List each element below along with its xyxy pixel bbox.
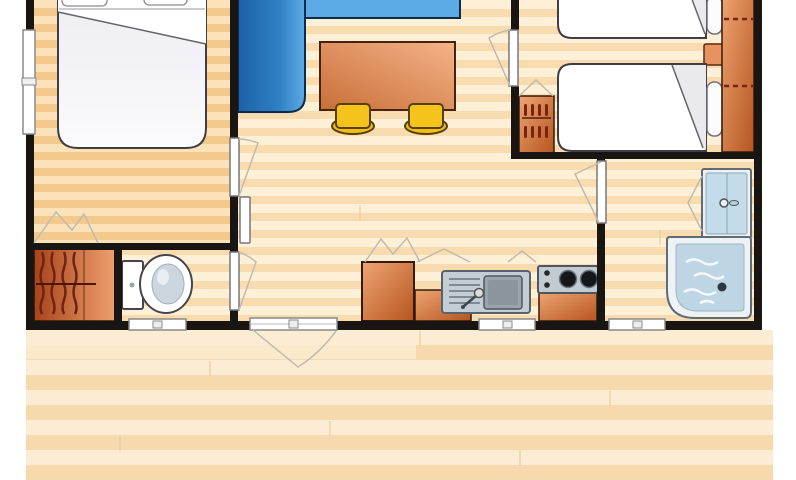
nightstand <box>704 44 723 65</box>
wall-twin-left <box>511 0 519 30</box>
dining-table <box>320 42 455 110</box>
closet-bifold-doors <box>34 212 98 243</box>
floorplan-drawing <box>0 0 796 480</box>
swing-twin-bedroom-door <box>489 30 510 86</box>
wall-wc-top <box>33 243 230 250</box>
wall-shower-left <box>597 223 605 321</box>
swing-double-bedroom-door <box>239 139 258 196</box>
swing-entrance-door <box>253 330 336 367</box>
hob-knob <box>544 270 550 276</box>
pillow <box>707 82 722 136</box>
cupboard-door-mark <box>417 249 470 262</box>
wall-bedroom-divider <box>230 196 238 253</box>
cupboard-door-mark <box>508 251 536 262</box>
window-wc <box>129 319 186 330</box>
stool-left <box>332 104 374 134</box>
swing-wc-door <box>239 252 256 310</box>
kitchen-sink <box>442 271 530 313</box>
door-leaf-wc <box>230 252 239 310</box>
toilet <box>122 255 192 313</box>
door-leaf-open-against-wall <box>240 197 250 243</box>
fridge-cabinet <box>362 262 414 321</box>
wall-right <box>754 0 762 330</box>
door-leaf-double-bedroom <box>230 138 239 196</box>
cabinet-door-mark <box>519 80 553 96</box>
twin-bed-top <box>558 0 722 38</box>
double-bed <box>58 0 206 148</box>
wall-twin-left <box>511 86 519 159</box>
wall-wc-inner <box>114 250 122 321</box>
wall-twin-bottom <box>511 152 762 159</box>
floorplan-canvas <box>0 0 796 480</box>
shower-drain <box>718 283 727 292</box>
twin-bed-bottom <box>558 64 722 151</box>
cupboard-doors-mark <box>365 238 420 262</box>
shelf-cabinet <box>519 96 554 153</box>
door-leaf-shower-room <box>597 161 606 223</box>
faucet <box>475 289 484 298</box>
closet-hanging-clothes <box>34 247 115 321</box>
shower-tray <box>667 237 751 318</box>
door-leaf-twin-bedroom <box>509 30 518 86</box>
basin-tap <box>720 199 728 207</box>
entrance-door <box>250 318 337 330</box>
hob-two-burner <box>538 266 598 293</box>
wardrobe-twin-room <box>722 0 756 152</box>
window-shower-room <box>609 319 665 330</box>
stool-right <box>405 104 447 134</box>
wall-bedroom-divider <box>230 0 238 139</box>
pillow <box>707 0 722 34</box>
window-bedroom-left <box>22 30 36 134</box>
washbasin-unit <box>688 169 751 238</box>
wall-bedroom-divider <box>230 310 238 324</box>
counter-right <box>539 292 597 321</box>
hob-knob <box>544 282 550 288</box>
basin-door-swing <box>688 176 702 231</box>
window-kitchen <box>479 319 535 330</box>
